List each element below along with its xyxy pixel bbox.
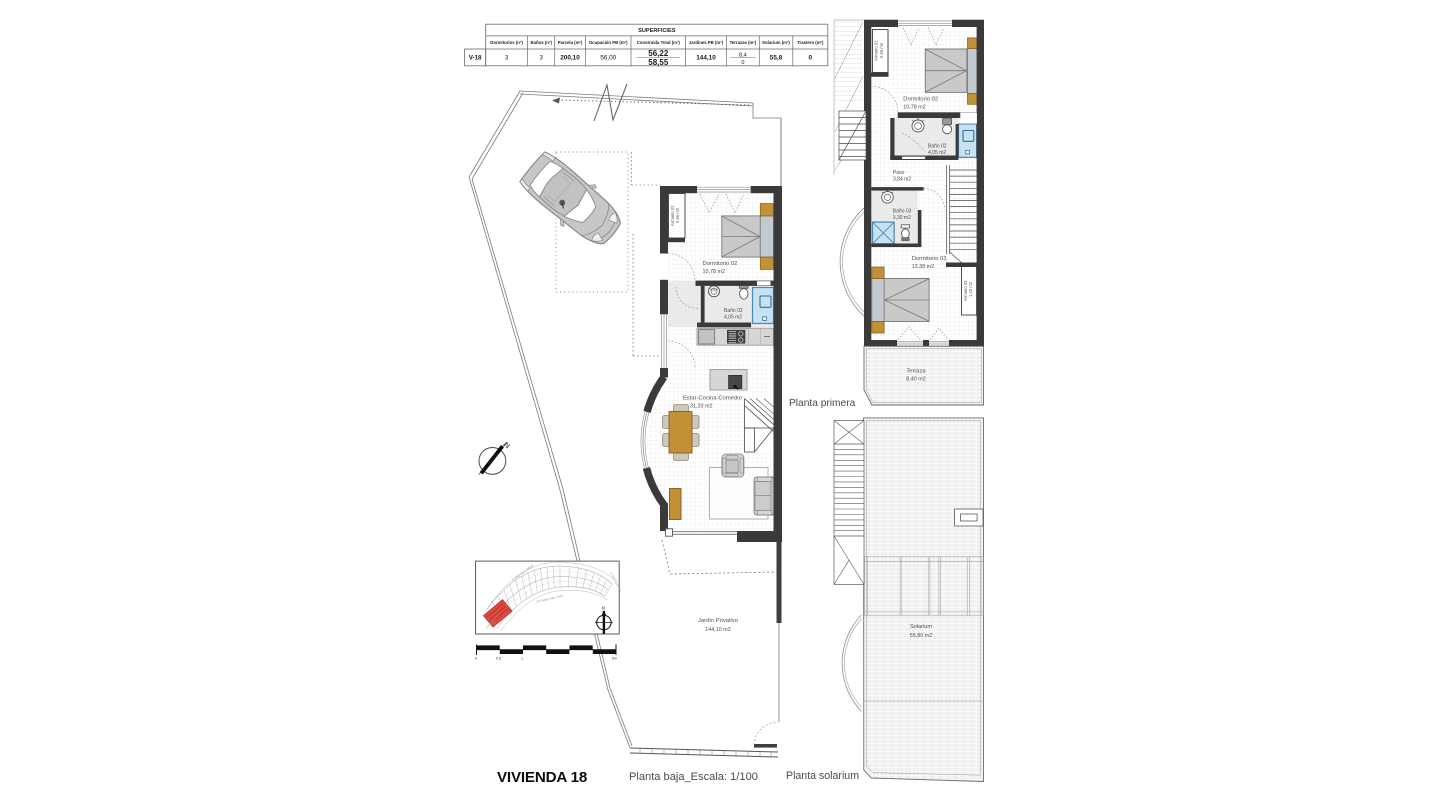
svg-text:5m: 5m — [612, 657, 617, 661]
svg-text:Baños (nº): Baños (nº) — [531, 40, 553, 45]
svg-text:Dormitorio 03: Dormitorio 03 — [912, 256, 947, 262]
svg-text:Planta baja_Escala: 1/100: Planta baja_Escala: 1/100 — [629, 771, 758, 783]
svg-text:31,20 m2: 31,20 m2 — [690, 404, 712, 410]
svg-text:Baño 02: Baño 02 — [928, 144, 947, 150]
svg-text:4,05 m2: 4,05 m2 — [928, 150, 946, 156]
svg-text:Armario 020,56 m2: Armario 020,56 m2 — [670, 205, 680, 226]
svg-text:Trastero (m²): Trastero (m²) — [797, 40, 824, 45]
svg-text:0: 0 — [809, 55, 813, 62]
svg-text:Paso: Paso — [893, 170, 905, 176]
svg-text:Dormitorio 02: Dormitorio 02 — [903, 97, 938, 103]
svg-text:Solarium (m²): Solarium (m²) — [762, 40, 790, 45]
svg-text:0: 0 — [741, 60, 744, 66]
svg-text:Jardín Privativo: Jardín Privativo — [698, 618, 738, 624]
svg-text:13,38 m2: 13,38 m2 — [912, 264, 934, 270]
svg-text:VIVIENDA 18: VIVIENDA 18 — [497, 769, 587, 786]
svg-text:0: 0 — [475, 657, 477, 661]
svg-text:Solarium: Solarium — [910, 624, 932, 630]
svg-text:SUPERFICIES: SUPERFICIES — [638, 28, 676, 34]
svg-text:Planta primera: Planta primera — [789, 398, 856, 409]
svg-text:Jardines PB (m²): Jardines PB (m²) — [689, 40, 724, 45]
svg-text:4,05 m2: 4,05 m2 — [724, 315, 742, 321]
svg-text:Dormitorios (nº): Dormitorios (nº) — [490, 40, 523, 45]
svg-text:55,8: 55,8 — [770, 55, 783, 62]
svg-text:10,78 m2: 10,78 m2 — [903, 105, 925, 111]
svg-text:Armario 020,56 m2: Armario 020,56 m2 — [874, 40, 884, 61]
svg-text:Ocupación PB (m²): Ocupación PB (m²) — [589, 40, 628, 45]
svg-text:3: 3 — [539, 55, 543, 62]
svg-text:Terraza: Terraza — [906, 369, 926, 375]
svg-text:Armario 031,43 m2: Armario 031,43 m2 — [963, 280, 973, 301]
svg-text:1: 1 — [521, 657, 523, 661]
svg-text:V-18: V-18 — [469, 55, 482, 62]
svg-text:Parcela (m²): Parcela (m²) — [558, 40, 583, 45]
svg-text:10,78 m2: 10,78 m2 — [703, 269, 725, 275]
svg-text:Construida Total (m²): Construida Total (m²) — [637, 40, 681, 45]
svg-text:3,84 m2: 3,84 m2 — [893, 177, 911, 183]
svg-text:144,10 m2: 144,10 m2 — [705, 627, 730, 633]
svg-text:Planta solarium: Planta solarium — [786, 770, 859, 782]
svg-text:Baño 03: Baño 03 — [893, 209, 912, 215]
svg-text:N: N — [602, 606, 605, 611]
svg-text:58,55: 58,55 — [648, 58, 669, 67]
svg-text:Baño 02: Baño 02 — [724, 308, 743, 314]
svg-text:0,5: 0,5 — [496, 657, 501, 661]
svg-text:144,10: 144,10 — [696, 55, 716, 62]
svg-text:Dormitorio 02: Dormitorio 02 — [703, 261, 738, 267]
svg-text:Terrazas (m²): Terrazas (m²) — [730, 40, 757, 45]
svg-text:8,40 m2: 8,40 m2 — [906, 377, 925, 383]
svg-text:55,80 m2: 55,80 m2 — [910, 633, 932, 639]
svg-text:200,10: 200,10 — [560, 55, 580, 62]
svg-text:56,00: 56,00 — [600, 55, 616, 62]
svg-text:3: 3 — [505, 55, 509, 62]
svg-text:Estar-Cocina-Comedor: Estar-Cocina-Comedor — [683, 396, 742, 402]
svg-text:3,30 m2: 3,30 m2 — [893, 215, 911, 221]
